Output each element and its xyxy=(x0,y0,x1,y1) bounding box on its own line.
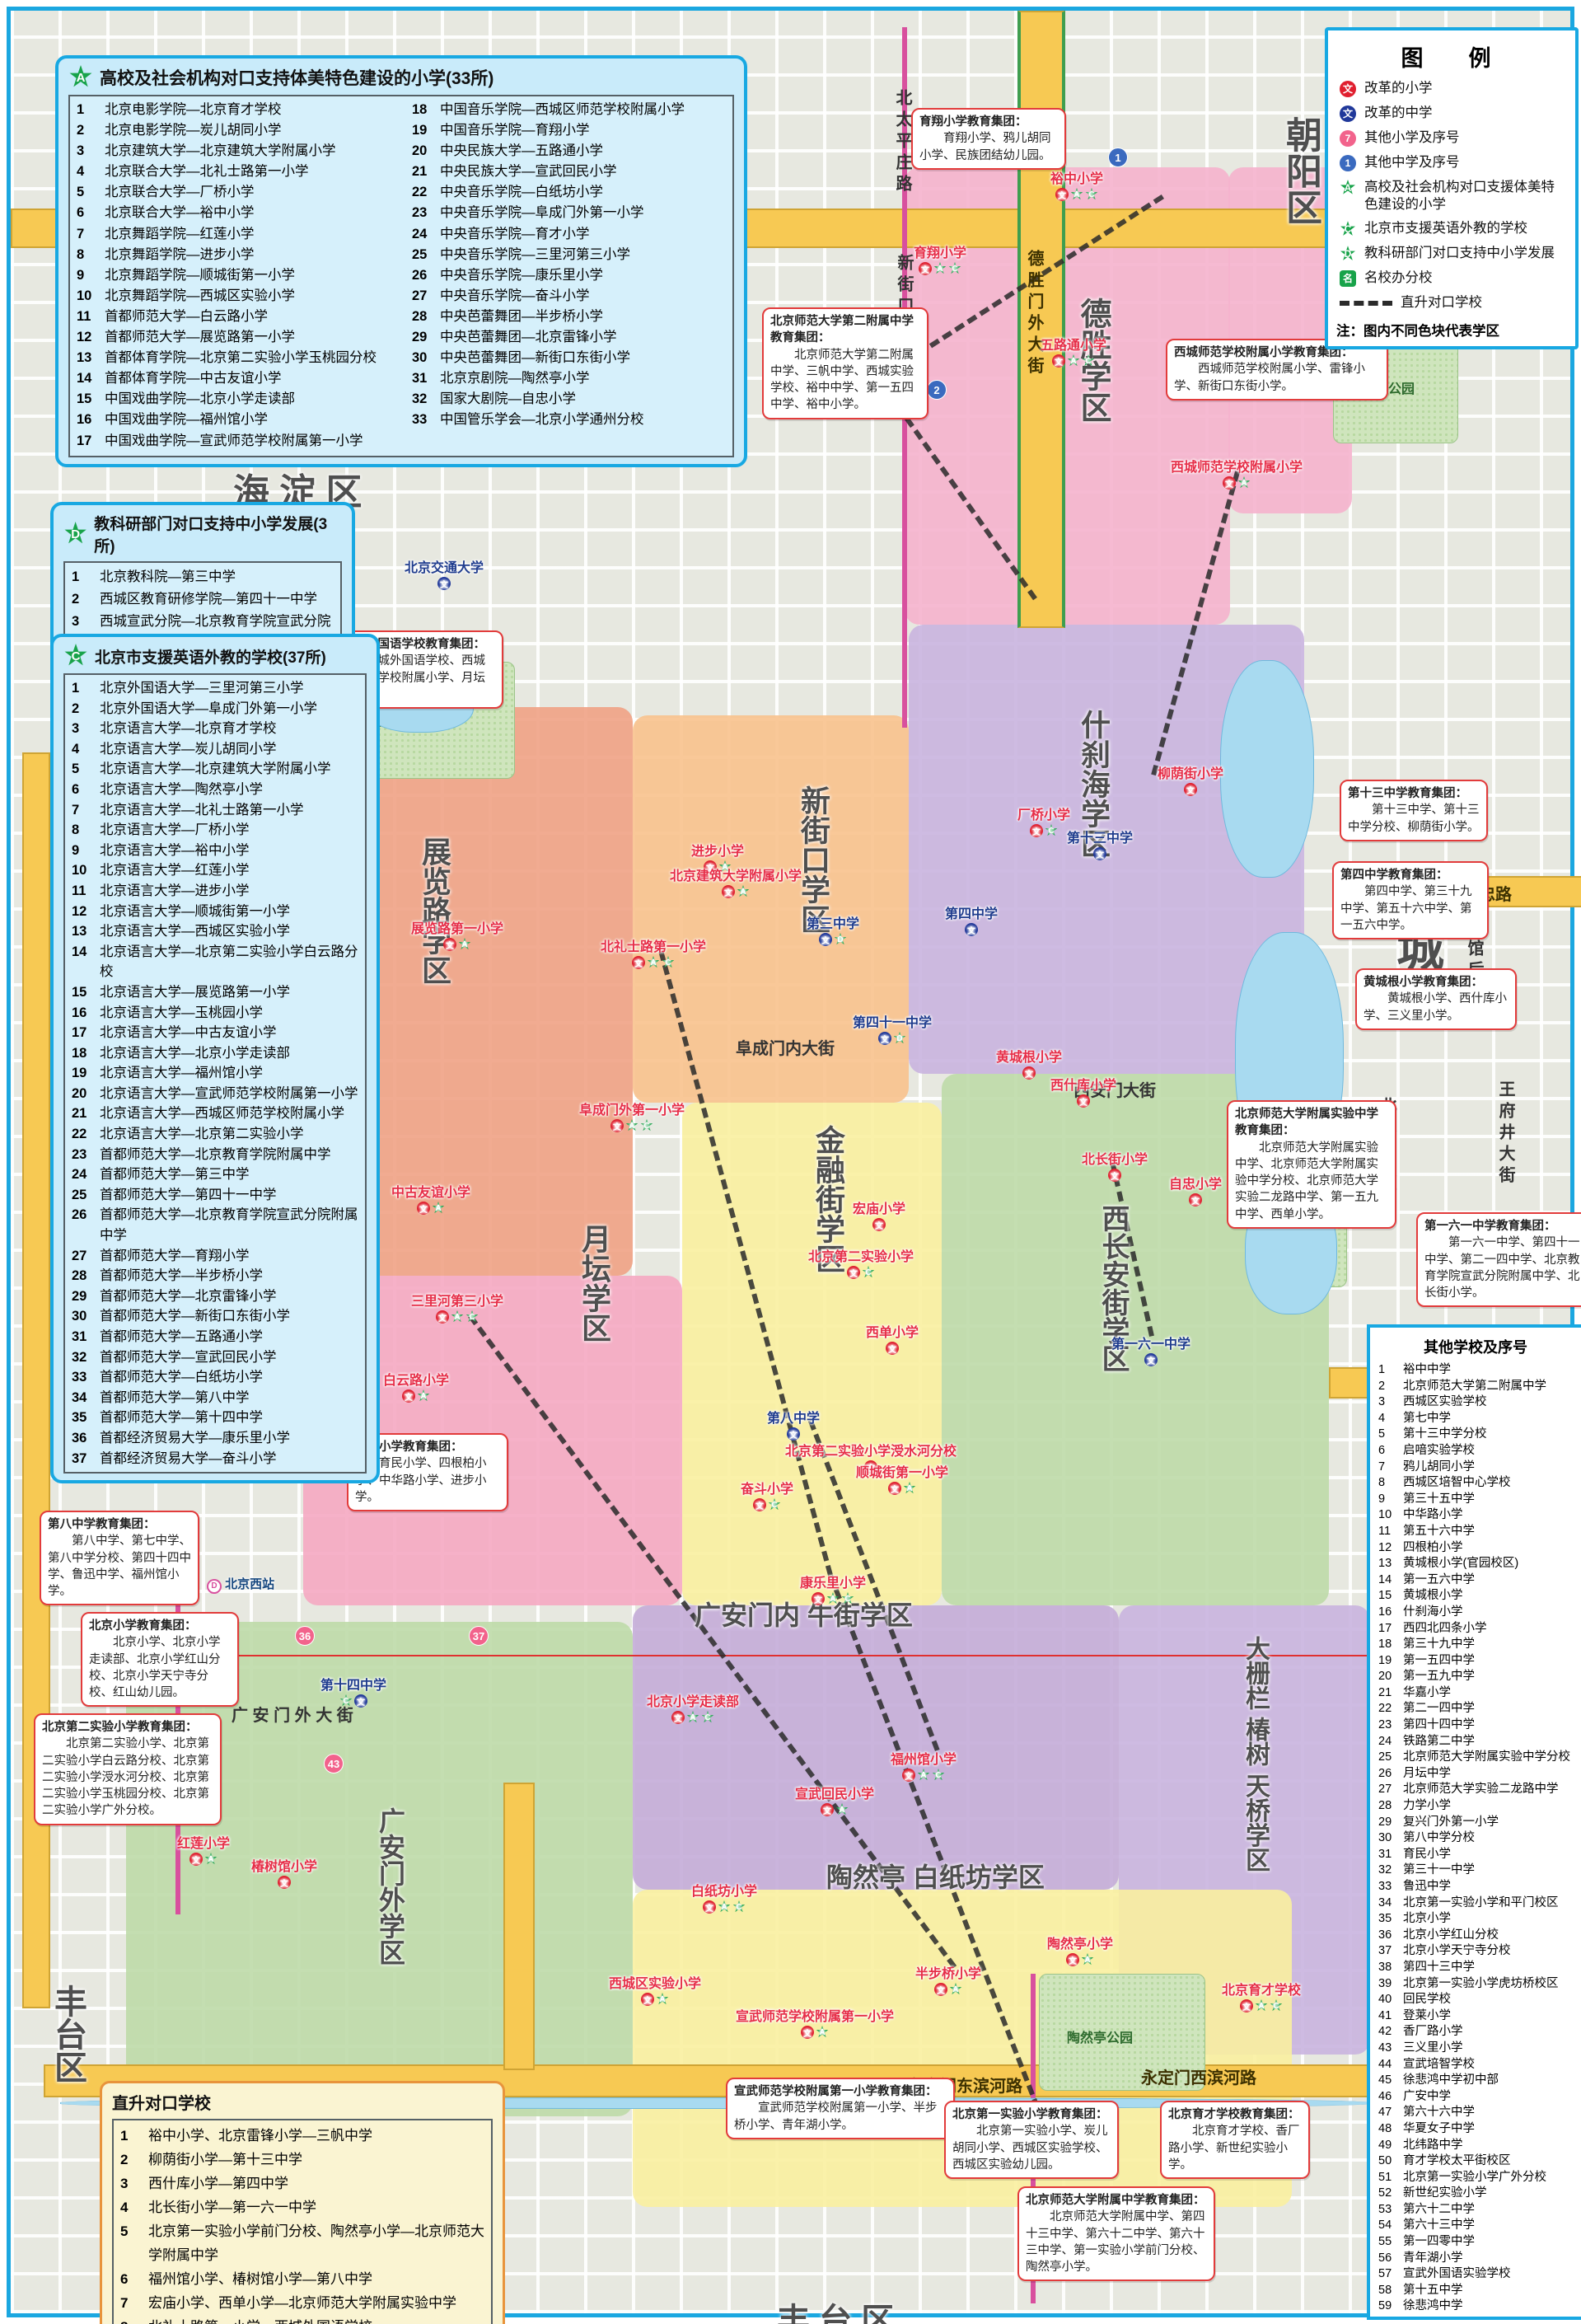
list-item: 31首都师范大学—五路通小学 xyxy=(72,1327,358,1347)
list-item: 4北京联合大学—北礼士路第一小学 xyxy=(77,162,391,182)
education-group-box: 北京师范大学附属实验中学教育集团： 北京师范大学附属实验中学、北京师范大学附属实… xyxy=(1227,1100,1396,1229)
star-d-icon: D xyxy=(1340,246,1356,262)
panel-box-c-title: 北京市支援英语外教的学校(37所) xyxy=(95,645,326,668)
list-item: 25北京师范大学附属实验中学分校 xyxy=(1378,1750,1573,1766)
list-item: 12北京语言大学—顺城街第一小学 xyxy=(72,902,358,922)
legend-item-label: 其他中学及序号 xyxy=(1364,154,1460,171)
list-item: 10中华路小学 xyxy=(1378,1507,1573,1524)
legend-item: 7其他小学及序号 xyxy=(1340,129,1564,147)
list-item: 44宣武培智学校 xyxy=(1378,2057,1573,2073)
list-item: 35北京小学 xyxy=(1378,1911,1573,1928)
list-item: 11首都师范大学—白云路小学 xyxy=(77,307,391,327)
panel-other-schools: 其他学校及序号 1裕中中学2北京师范大学第二附属中学3西城区实验学校4第七中学5… xyxy=(1367,1324,1581,2320)
list-item: 2北京师范大学第二附属中学 xyxy=(1378,1379,1573,1395)
list-item: 8北京语言大学—厂桥小学 xyxy=(72,820,358,841)
list-item: 33鲁迅中学 xyxy=(1378,1879,1573,1895)
list-item: 17西四北四条小学 xyxy=(1378,1621,1573,1638)
list-item: 11第五十六中学 xyxy=(1378,1524,1573,1540)
list-item: 6启喑实验学校 xyxy=(1378,1443,1573,1460)
education-group-body: 北京小学、北京小学走读部、北京小学红山分校、北京小学天宁寺分校、红山幼儿园。 xyxy=(89,1634,231,1701)
metro-icon: D xyxy=(207,1579,222,1594)
education-group-title: 第八中学教育集团： xyxy=(48,1516,191,1533)
list-item: 28首都师范大学—半步桥小学 xyxy=(72,1266,358,1286)
list-item: 13首都体育学院—北京第二实验小学玉桃园分校 xyxy=(77,348,391,368)
list-item: 32首都师范大学—宣武回民小学 xyxy=(72,1347,358,1368)
list-item: 56青年湖小学 xyxy=(1378,2251,1573,2267)
education-group-box: 北京师范大学附属中学教育集团： 北京师范大学附属中学、第四十三中学、第六十二中学… xyxy=(1017,2186,1215,2281)
list-item: 47第六十六中学 xyxy=(1378,2105,1573,2121)
list-item: 31北京京剧院—陶然亭小学 xyxy=(412,368,726,389)
list-item: 33中国管乐学会—北京小学通州分校 xyxy=(412,410,726,430)
education-group-body: 北京第二实验小学、北京第二实验小学白云路分校、北京第二实验小学涭水河分校、北京第… xyxy=(42,1736,213,1819)
list-item: 29首都师范大学—北京雷锋小学 xyxy=(72,1286,358,1307)
list-item: 2西城区教育研修学院—第四十一中学 xyxy=(72,588,334,611)
list-item: 10北京舞蹈学院—西城区实验小学 xyxy=(77,286,391,307)
list-item: 36首都经济贸易大学—康乐里小学 xyxy=(72,1428,358,1449)
star-c-icon: C xyxy=(1340,221,1356,237)
list-item: 52新世纪实验小学 xyxy=(1378,2186,1573,2202)
list-item: 5北京第一实验小学前门分校、陶然亭小学—北京师范大学附属中学 xyxy=(120,2219,484,2267)
education-group-title: 北京师范大学第二附属中学教育集团： xyxy=(770,313,920,347)
list-item: 54第六十三中学 xyxy=(1378,2218,1573,2234)
list-item: 18第三十九中学 xyxy=(1378,1637,1573,1653)
list-item: 30中央芭蕾舞团—新街口东街小学 xyxy=(412,348,726,368)
list-item: 29中央芭蕾舞团—北京雷锋小学 xyxy=(412,327,726,348)
list-item: 43三义里小学 xyxy=(1378,2041,1573,2057)
dash-line-icon xyxy=(1340,301,1392,306)
list-item: 18北京语言大学—北京小学走读部 xyxy=(72,1043,358,1064)
star-a-icon: A xyxy=(68,65,93,90)
list-item: 7北京舞蹈学院—红莲小学 xyxy=(77,224,391,245)
education-group-box: 北京第二实验小学教育集团： 北京第二实验小学、北京第二实验小学白云路分校、北京第… xyxy=(34,1713,222,1825)
list-item: 27北京师范大学实验二龙路中学 xyxy=(1378,1782,1573,1798)
list-item: 7宏庙小学、西单小学—北京师范大学附属实验中学 xyxy=(120,2291,484,2315)
list-item: 28力学小学 xyxy=(1378,1798,1573,1815)
list-item: 58第十五中学 xyxy=(1378,2283,1573,2299)
list-item: 4北京语言大学—炭儿胡同小学 xyxy=(72,739,358,760)
education-group-body: 黄城根小学、西什库小学、三义里小学。 xyxy=(1363,991,1508,1024)
list-item: 29复兴门外第一小学 xyxy=(1378,1815,1573,1831)
list-item: 9北京语言大学—裕中小学 xyxy=(72,841,358,861)
list-item: 5北京语言大学—北京建筑大学附属小学 xyxy=(72,759,358,780)
list-item: 23中央音乐学院—阜成门外第一小学 xyxy=(412,203,726,223)
education-group-box: 第一六一中学教育集团： 第一六一中学、第四十一中学、第二一四中学、北京教育学院宣… xyxy=(1416,1212,1581,1307)
list-item: 55第一四零中学 xyxy=(1378,2234,1573,2251)
list-item: 26月坛中学 xyxy=(1378,1766,1573,1783)
list-item: 21华嘉小学 xyxy=(1378,1685,1573,1702)
direct-promotion-title: 直升对口学校 xyxy=(112,2090,493,2114)
list-item: 50育才学校太平街校区 xyxy=(1378,2153,1573,2170)
list-item: 22第二一四中学 xyxy=(1378,1701,1573,1717)
legend-item-label: 北京市支援英语外教的学校 xyxy=(1364,220,1527,237)
star-a-icon: A xyxy=(1340,180,1356,196)
list-item: 6福州馆小学、椿树馆小学—第八中学 xyxy=(120,2267,484,2291)
other-schools-title: 其他学校及序号 xyxy=(1378,1336,1573,1357)
legend-item-label: 教科研部门对口支持中小学发展 xyxy=(1364,245,1555,262)
legend-title: 图 例 xyxy=(1336,40,1567,73)
legend-item-label: 改革的中学 xyxy=(1364,105,1433,122)
education-group-title: 北京师范大学附属实验中学教育集团： xyxy=(1235,1106,1388,1140)
list-item: 26首都师范大学—北京教育学院宣武分院附属中学 xyxy=(72,1205,358,1245)
map-canvas[interactable]: 北京动物园柳荫公园中山公园陶然亭公园 海 淀 区朝阳区丰台区丰 台 区德胜学区什… xyxy=(7,7,1574,2317)
list-item: 24中央音乐学院—育才小学 xyxy=(412,224,726,245)
list-item: 49北纬路中学 xyxy=(1378,2138,1573,2154)
list-item: 15北京语言大学—展览路第一小学 xyxy=(72,982,358,1003)
list-item: 16中国戏曲学院—福州馆小学 xyxy=(77,410,391,430)
wen-blue-icon: 文 xyxy=(1340,105,1356,122)
list-item: 21中央民族大学—宣武回民小学 xyxy=(412,162,726,182)
list-item: 20北京语言大学—宣武师范学校附属第一小学 xyxy=(72,1084,358,1104)
list-item: 35首都师范大学—第十四中学 xyxy=(72,1408,358,1428)
list-item: 14北京语言大学—北京第二实验小学白云路分校 xyxy=(72,942,358,982)
education-group-title: 北京小学教育集团： xyxy=(89,1618,231,1634)
list-item: 46广安中学 xyxy=(1378,2089,1573,2106)
list-item: 59徐悲鸿中学 xyxy=(1378,2298,1573,2315)
list-item: 26中央音乐学院—康乐里小学 xyxy=(412,265,726,286)
education-group-box: 第四中学教育集团： 第四中学、第三十九中学、第五十六中学、第一五六中学。 xyxy=(1332,861,1489,939)
education-group-title: 第四中学教育集团： xyxy=(1340,867,1480,883)
education-group-body: 第十三中学、第十三中学分校、柳荫街小学。 xyxy=(1348,802,1480,836)
legend-item-label: 改革的小学 xyxy=(1364,80,1433,97)
list-item: 10北京语言大学—红莲小学 xyxy=(72,860,358,881)
list-item: 15黄城根小学 xyxy=(1378,1588,1573,1605)
legend-items: 文改革的小学文改革的中学7其他小学及序号1其他中学及序号A高校及社会机构对口支援… xyxy=(1336,80,1567,312)
education-group-box: 第十三中学教育集团： 第十三中学、第十三中学分校、柳荫街小学。 xyxy=(1340,780,1488,841)
legend-item: A高校及社会机构对口支援体美特色建设的小学 xyxy=(1340,179,1564,213)
list-item: 12四根柏小学 xyxy=(1378,1540,1573,1557)
legend-item-label: 其他小学及序号 xyxy=(1364,129,1460,147)
list-item: 4第七中学 xyxy=(1378,1411,1573,1427)
list-item: 27中央音乐学院—奋斗小学 xyxy=(412,286,726,307)
education-group-body: 西城师范学校附属小学、雷锋小学、新街口东街小学。 xyxy=(1174,361,1380,395)
list-item: 2北京电影学院—炭儿胡同小学 xyxy=(77,120,391,141)
list-item: 9第三十五中学 xyxy=(1378,1492,1573,1508)
list-item: 18中国音乐学院—西城区师范学校附属小学 xyxy=(412,100,726,120)
legend-item: 名名校办分校 xyxy=(1340,269,1564,287)
list-item: 13黄城根小学(官园校区) xyxy=(1378,1556,1573,1572)
list-item: 6北京联合大学—裕中小学 xyxy=(77,203,391,223)
list-item: 2柳荫街小学—第十三中学 xyxy=(120,2148,484,2172)
list-item: 22北京语言大学—北京第二实验小学 xyxy=(72,1124,358,1145)
list-item: 8北礼士路第一小学—西城外国语学校 xyxy=(120,2315,484,2324)
num-pink-icon: 7 xyxy=(1340,130,1356,147)
education-group-box: 黄城根小学教育集团： 黄城根小学、西什库小学、三义里小学。 xyxy=(1355,968,1517,1030)
list-item: 1北京电影学院—北京育才学校 xyxy=(77,100,391,120)
list-item: 19中国音乐学院—育翔小学 xyxy=(412,120,726,141)
list-item: 1北京教科院—第三中学 xyxy=(72,566,334,588)
legend-item: 文改革的小学 xyxy=(1340,80,1564,97)
list-item: 53第六十二中学 xyxy=(1378,2202,1573,2219)
education-group-title: 宣武师范学校附属第一小学教育集团： xyxy=(734,2083,947,2100)
wen-red-icon: 文 xyxy=(1340,81,1356,97)
list-item: 37北京小学天宁寺分校 xyxy=(1378,1943,1573,1960)
list-item: 24首都师范大学—第三中学 xyxy=(72,1164,358,1185)
list-item: 5第十三中学分校 xyxy=(1378,1427,1573,1443)
list-item: 34首都师范大学—第八中学 xyxy=(72,1388,358,1408)
list-item: 6北京语言大学—陶然亭小学 xyxy=(72,780,358,800)
list-item: 7北京语言大学—北礼士路第一小学 xyxy=(72,800,358,821)
num-blue-icon: 1 xyxy=(1340,155,1356,171)
list-item: 16北京语言大学—玉桃园小学 xyxy=(72,1003,358,1024)
list-item: 37首都经济贸易大学—奋斗小学 xyxy=(72,1449,358,1469)
education-group-body: 第八中学、第七中学、第八中学分校、第四十四中学、鲁迅中学、福州馆小学。 xyxy=(48,1533,191,1600)
list-item: 11北京语言大学—进步小学 xyxy=(72,881,358,902)
education-group-box: 北京师范大学第二附属中学教育集团： 北京师范大学第二附属中学、三帆中学、西城实验… xyxy=(762,307,928,419)
education-group-body: 宣武师范学校附属第一小学、半步桥小学、青年湖小学。 xyxy=(734,2100,947,2134)
railway-station-label: D 北京西站 xyxy=(207,1575,274,1594)
list-item: 20中央民族大学—五路通小学 xyxy=(412,141,726,162)
list-item: 4北长街小学—第一六一中学 xyxy=(120,2195,484,2219)
education-group-title: 北京第一实验小学教育集团： xyxy=(952,2106,1111,2123)
list-item: 38第四十三中学 xyxy=(1378,1960,1573,1976)
ming-icon: 名 xyxy=(1340,270,1356,287)
panel-box-d-title: 教科研部门对口支持中小学发展(3所) xyxy=(94,512,342,556)
list-item: 28中央芭蕾舞团—半步桥小学 xyxy=(412,307,726,327)
list-item: 1裕中小学、北京雷锋小学—三帆中学 xyxy=(120,2124,484,2148)
education-group-title: 黄城根小学教育集团： xyxy=(1363,974,1508,991)
list-item: 17北京语言大学—中古友谊小学 xyxy=(72,1023,358,1043)
legend-item-label: 直升对口学校 xyxy=(1401,294,1482,312)
box-c-list: 1北京外国语大学—三里河第三小学2北京外国语大学—阜成门外第一小学3北京语言大学… xyxy=(63,673,367,1474)
panel-direct-promotion: 直升对口学校 1裕中小学、北京雷锋小学—三帆中学2柳荫街小学—第十三中学3西什库… xyxy=(100,2081,505,2324)
list-item: 30首都师范大学—新街口东街小学 xyxy=(72,1306,358,1327)
education-group-box: 北京第一实验小学教育集团： 北京第一实验小学、炭儿胡同小学、西城区实验学校、西城… xyxy=(944,2101,1119,2179)
list-item: 57宣武外国语实验学校 xyxy=(1378,2266,1573,2283)
list-item: 14第一五六中学 xyxy=(1378,1572,1573,1589)
list-item: 33首都师范大学—白纸坊小学 xyxy=(72,1367,358,1388)
list-item: 1裕中中学 xyxy=(1378,1362,1573,1379)
education-group-body: 第四中学、第三十九中学、第五十六中学、第一五六中学。 xyxy=(1340,883,1480,934)
list-item: 20第一五九中学 xyxy=(1378,1669,1573,1685)
education-group-title: 北京第二实验小学教育集团： xyxy=(42,1719,213,1736)
legend-item: 直升对口学校 xyxy=(1340,294,1564,312)
list-item: 7鸦儿胡同小学 xyxy=(1378,1460,1573,1476)
panel-box-a: A 高校及社会机构对口支持体美特色建设的小学(33所) 1北京电影学院—北京育才… xyxy=(55,55,747,467)
list-item: 51北京第一实验小学广外分校 xyxy=(1378,2170,1573,2186)
education-group-box: 育翔小学教育集团： 育翔小学、鸦儿胡同小学、民族团结幼儿园。 xyxy=(911,108,1066,170)
education-group-title: 育翔小学教育集团： xyxy=(919,114,1058,130)
list-item: 13北京语言大学—西城区实验小学 xyxy=(72,921,358,942)
panel-legend: 图 例 文改革的小学文改革的中学7其他小学及序号1其他中学及序号A高校及社会机构… xyxy=(1325,27,1579,349)
list-item: 19北京语言大学—福州馆小学 xyxy=(72,1063,358,1084)
star-c-icon: C xyxy=(63,644,88,668)
list-item: 48华夏女子中学 xyxy=(1378,2121,1573,2138)
education-group-box: 北京育才学校教育集团： 北京育才学校、香厂路小学、新世纪实验小学。 xyxy=(1160,2101,1310,2179)
education-group-body: 北京第一实验小学、炭儿胡同小学、西城区实验学校、西城区实验幼儿园。 xyxy=(952,2123,1111,2173)
education-group-body: 北京师范大学第二附属中学、三帆中学、西城实验学校、裕中中学、第一五四中学、裕中小… xyxy=(770,347,920,414)
list-item: 27首都师范大学—育翔小学 xyxy=(72,1246,358,1267)
list-item: 42香厂路小学 xyxy=(1378,2024,1573,2041)
list-item: 1北京外国语大学—三里河第三小学 xyxy=(72,678,358,699)
direct-promotion-list: 1裕中小学、北京雷锋小学—三帆中学2柳荫街小学—第十三中学3西什库小学—第四中学… xyxy=(112,2119,493,2324)
list-item: 8西城区培智中心学校 xyxy=(1378,1475,1573,1492)
panel-box-c: C 北京市支援英语外教的学校(37所) 1北京外国语大学—三里河第三小学2北京外… xyxy=(50,634,380,1483)
list-item: 3西什库小学—第四中学 xyxy=(120,2172,484,2195)
list-item: 23第四十四中学 xyxy=(1378,1717,1573,1734)
education-group-body: 育翔小学、鸦儿胡同小学、民族团结幼儿园。 xyxy=(919,130,1058,164)
list-item: 31育民小学 xyxy=(1378,1847,1573,1863)
legend-item: C北京市支援英语外教的学校 xyxy=(1340,220,1564,237)
legend-item: 文改革的中学 xyxy=(1340,105,1564,122)
education-group-title: 第十三中学教育集团： xyxy=(1348,785,1480,802)
list-item: 32第三十一中学 xyxy=(1378,1862,1573,1879)
list-item: 39北京第一实验小学虎坊桥校区 xyxy=(1378,1976,1573,1993)
education-group-box: 第八中学教育集团： 第八中学、第七中学、第八中学分校、第四十四中学、鲁迅中学、福… xyxy=(40,1511,199,1605)
list-item: 8北京舞蹈学院—进步小学 xyxy=(77,245,391,265)
legend-note: 注：图内不同色块代表学区 xyxy=(1336,320,1567,340)
education-group-title: 第一六一中学教育集团： xyxy=(1424,1218,1581,1235)
legend-item: D教科研部门对口支持中小学发展 xyxy=(1340,245,1564,262)
education-group-body: 北京育才学校、香厂路小学、新世纪实验小学。 xyxy=(1168,2123,1302,2173)
list-item: 24铁路第二中学 xyxy=(1378,1734,1573,1750)
list-item: 25首都师范大学—第四十一中学 xyxy=(72,1185,358,1206)
education-group-box: 北京小学教育集团： 北京小学、北京小学走读部、北京小学红山分校、北京小学天宁寺分… xyxy=(81,1612,239,1707)
education-group-body: 第一六一中学、第四十一中学、第二一四中学、北京教育学院宣武分院附属中学、北长街小… xyxy=(1424,1235,1581,1301)
map-page: 北京动物园柳荫公园中山公园陶然亭公园 海 淀 区朝阳区丰台区丰 台 区德胜学区什… xyxy=(0,0,1581,2324)
legend-item-label: 名校办分校 xyxy=(1364,269,1433,287)
education-group-body: 北京师范大学附属中学、第四十三中学、第六十二中学、第六十三中学、第一实验小学前门… xyxy=(1026,2209,1207,2275)
list-item: 9北京舞蹈学院—顺城街第一小学 xyxy=(77,265,391,286)
list-item: 3北京语言大学—北京育才学校 xyxy=(72,719,358,739)
list-item: 30第八中学分校 xyxy=(1378,1830,1573,1847)
list-item: 41登莱小学 xyxy=(1378,2008,1573,2025)
list-item: 40回民学校 xyxy=(1378,1992,1573,2008)
box-a-list: 1北京电影学院—北京育才学校2北京电影学院—炭儿胡同小学3北京建筑大学—北京建筑… xyxy=(68,95,734,457)
education-group-title: 北京育才学校教育集团： xyxy=(1168,2106,1302,2123)
list-item: 45徐悲鸿中学初中部 xyxy=(1378,2073,1573,2089)
legend-item-label: 高校及社会机构对口支援体美特色建设的小学 xyxy=(1364,179,1564,213)
education-group-title: 北京师范大学附属中学教育集团： xyxy=(1026,2192,1207,2209)
list-item: 15中国戏曲学院—北京小学走读部 xyxy=(77,389,391,410)
list-item: 3北京建筑大学—北京建筑大学附属小学 xyxy=(77,141,391,162)
list-item: 3西城区实验学校 xyxy=(1378,1394,1573,1411)
panel-box-a-title: 高校及社会机构对口支持体美特色建设的小学(33所) xyxy=(100,65,493,90)
list-item: 21北京语言大学—西城区师范学校附属小学 xyxy=(72,1103,358,1124)
list-item: 12首都师范大学—展览路第一小学 xyxy=(77,327,391,348)
list-item: 2北京外国语大学—阜成门外第一小学 xyxy=(72,699,358,719)
list-item: 36北京小学红山分校 xyxy=(1378,1928,1573,1944)
education-group-body: 北京师范大学附属实验中学、北京师范大学附属实验中学分校、北京师范大学实验二龙路中… xyxy=(1235,1140,1388,1223)
list-item: 22中央音乐学院—白纸坊小学 xyxy=(412,182,726,203)
legend-item: 1其他中学及序号 xyxy=(1340,154,1564,171)
list-item: 5北京联合大学—厂桥小学 xyxy=(77,182,391,203)
list-item: 17中国戏曲学院—宣武师范学校附属第一小学 xyxy=(77,431,391,452)
other-schools-list: 1裕中中学2北京师范大学第二附属中学3西城区实验学校4第七中学5第十三中学分校6… xyxy=(1378,1362,1573,2315)
list-item: 32国家大剧院—自忠小学 xyxy=(412,389,726,410)
list-item: 16什刹海小学 xyxy=(1378,1605,1573,1621)
list-item: 19第一五四中学 xyxy=(1378,1653,1573,1670)
list-item: 23首都师范大学—北京教育学院附属中学 xyxy=(72,1145,358,1165)
education-group-box: 宣武师范学校附属第一小学教育集团： 宣武师范学校附属第一小学、半步桥小学、青年湖… xyxy=(726,2078,955,2139)
list-item: 34北京第一实验小学和平门校区 xyxy=(1378,1895,1573,1912)
list-item: 25中央音乐学院—三里河第三小学 xyxy=(412,245,726,265)
list-item: 14首都体育学院—中古友谊小学 xyxy=(77,368,391,389)
star-d-icon: D xyxy=(63,522,87,546)
